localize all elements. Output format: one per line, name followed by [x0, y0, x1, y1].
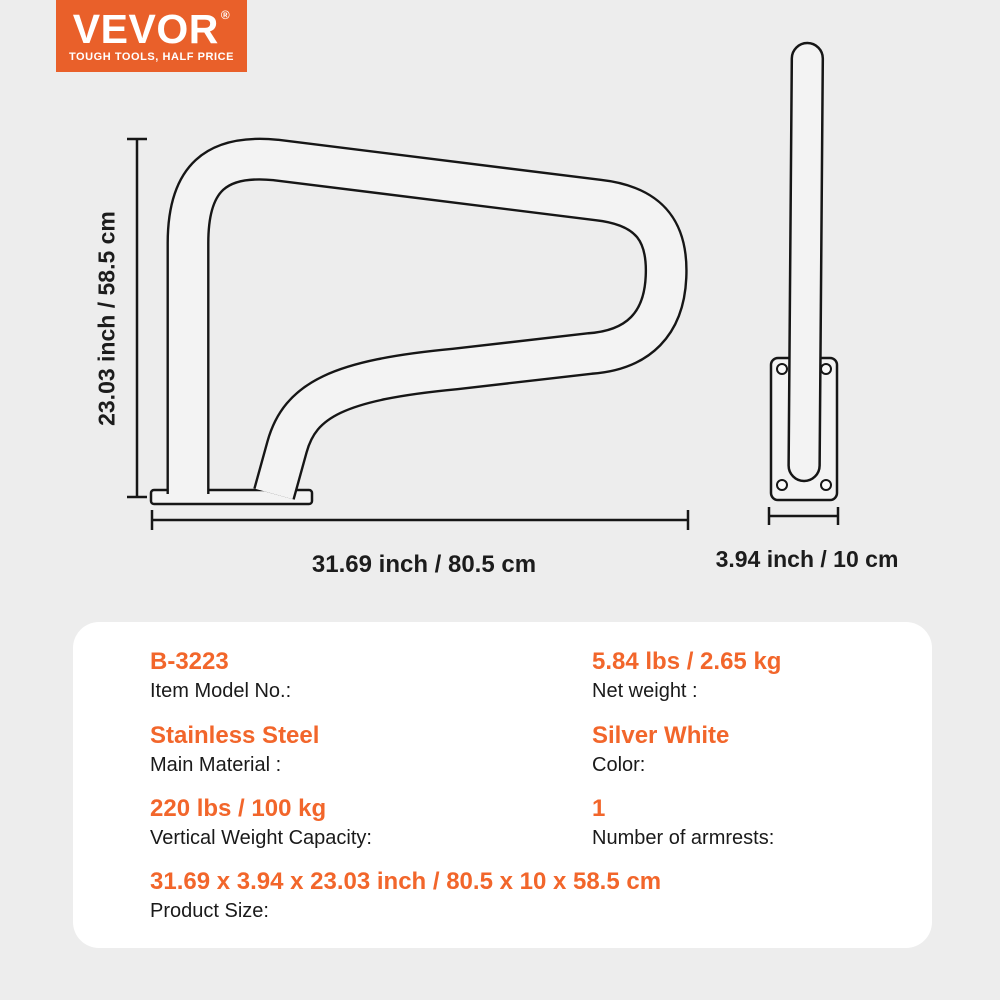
height-dimension-label: 23.03 inch / 58.5 cm: [94, 199, 121, 439]
spec-label: Number of armrests:: [592, 826, 774, 850]
spec-item-color: Silver White Color:: [592, 722, 729, 777]
spec-value: 220 lbs / 100 kg: [150, 795, 372, 823]
spec-item-model: B-3223 Item Model No.:: [150, 648, 291, 703]
bolt-hole-top-left: [777, 364, 787, 374]
spec-value: Silver White: [592, 722, 729, 750]
spec-item-material: Stainless Steel Main Material :: [150, 722, 319, 777]
spec-label: Main Material :: [150, 753, 319, 777]
side-view-grab-rail: [771, 43, 837, 500]
spec-card: B-3223 Item Model No.: 5.84 lbs / 2.65 k…: [73, 622, 932, 948]
rail-tube-fill: [188, 159, 666, 494]
width-dimension-label: 31.69 inch / 80.5 cm: [274, 551, 574, 579]
bolt-hole-bottom-left: [777, 480, 787, 490]
spec-item-net-weight: 5.84 lbs / 2.65 kg Net weight :: [592, 648, 781, 703]
spec-label: Item Model No.:: [150, 679, 291, 703]
spec-item-product-size: 31.69 x 3.94 x 23.03 inch / 80.5 x 10 x …: [150, 868, 661, 923]
height-dimension-line: [127, 139, 147, 497]
technical-drawing: [0, 0, 1000, 610]
spec-value: Stainless Steel: [150, 722, 319, 750]
spec-label: Color:: [592, 753, 729, 777]
bolt-hole-top-right: [821, 364, 831, 374]
spec-label: Vertical Weight Capacity:: [150, 826, 372, 850]
spec-label: Product Size:: [150, 899, 661, 923]
spec-value: B-3223: [150, 648, 291, 676]
depth-dimension-label: 3.94 inch / 10 cm: [657, 546, 957, 573]
product-spec-image: VEVOR ® TOUGH TOOLS, HALF PRICE: [0, 0, 1000, 1000]
spec-value: 1: [592, 795, 774, 823]
depth-dimension-line: [769, 507, 838, 525]
spec-item-armrests: 1 Number of armrests:: [592, 795, 774, 850]
width-dimension-line: [152, 510, 688, 530]
spec-value: 31.69 x 3.94 x 23.03 inch / 80.5 x 10 x …: [150, 868, 661, 896]
spec-label: Net weight :: [592, 679, 781, 703]
front-view-grab-rail: [151, 159, 666, 504]
side-tube: [788, 43, 822, 481]
spec-item-weight-capacity: 220 lbs / 100 kg Vertical Weight Capacit…: [150, 795, 372, 850]
bolt-hole-bottom-right: [821, 480, 831, 490]
spec-value: 5.84 lbs / 2.65 kg: [592, 648, 781, 676]
